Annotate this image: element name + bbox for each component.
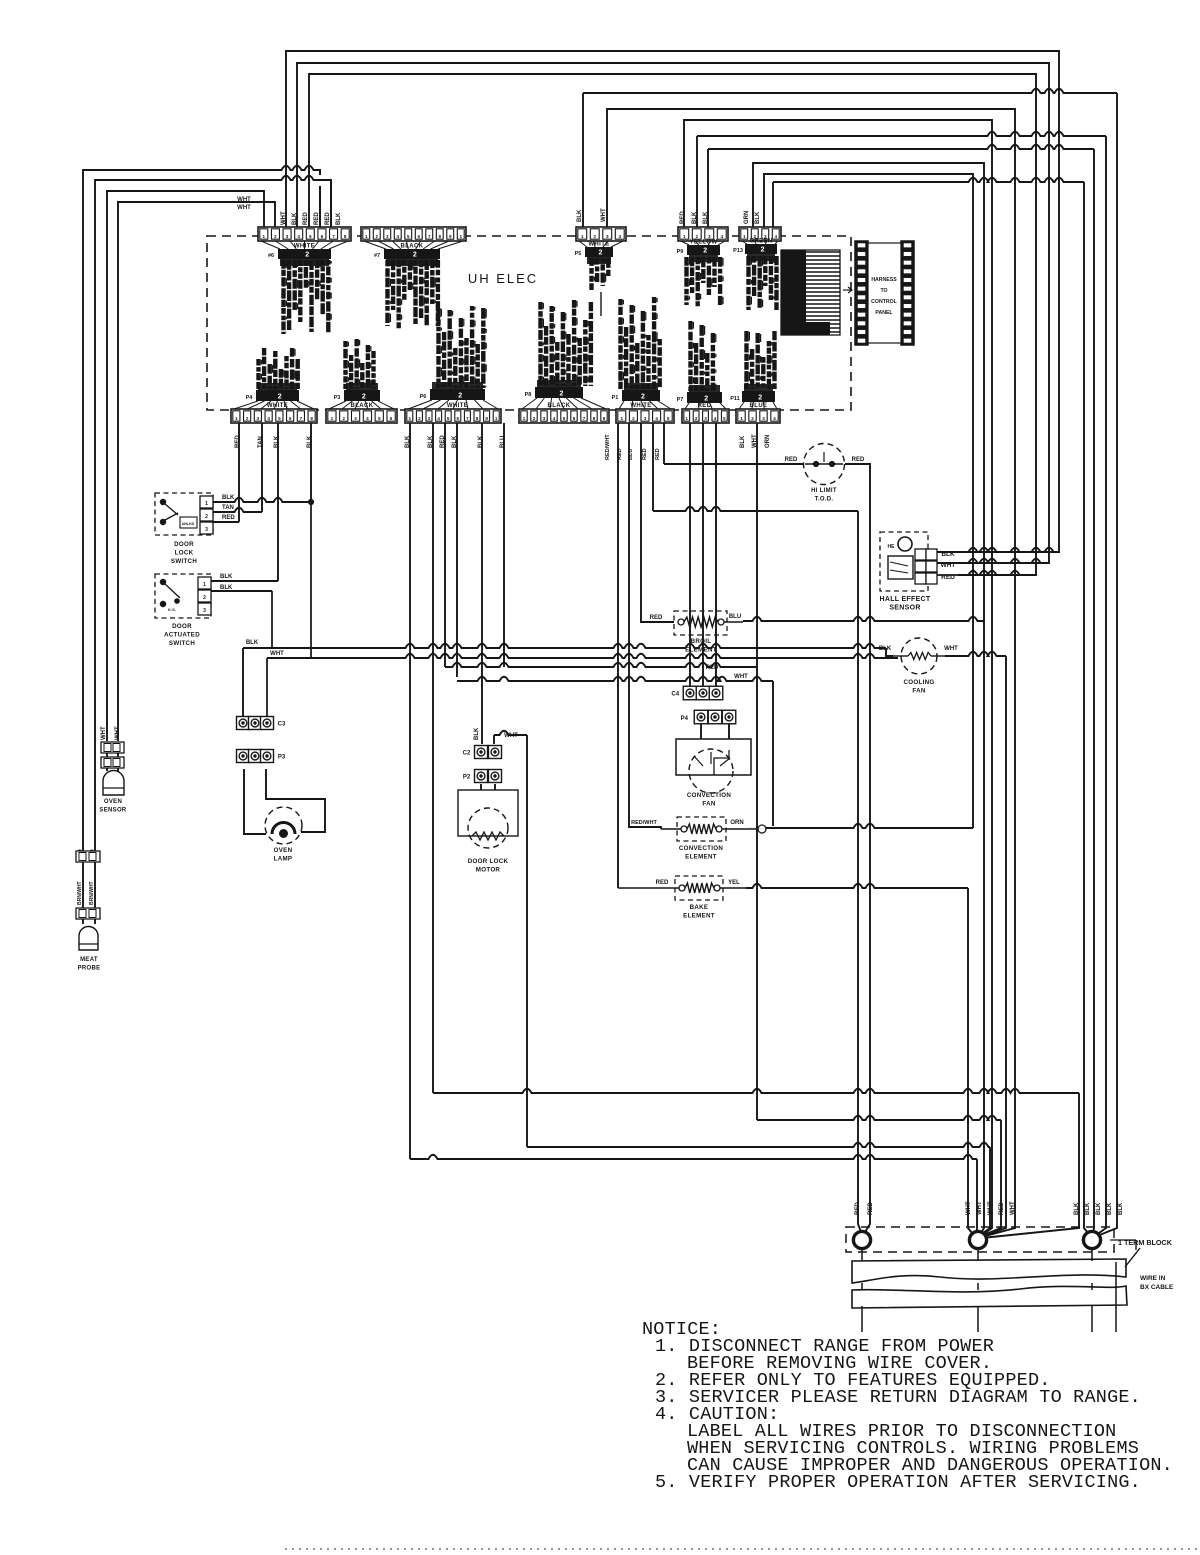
svg-text:2: 2 <box>274 234 277 239</box>
svg-text:DOOR LOCK: DOOR LOCK <box>468 858 509 865</box>
svg-text:4: 4 <box>720 234 723 239</box>
svg-text:4: 4 <box>437 416 440 421</box>
svg-text:1: 1 <box>743 234 746 239</box>
svg-text:5: 5 <box>278 416 281 421</box>
svg-text:RED: RED <box>314 212 320 225</box>
svg-text:P11: P11 <box>730 396 739 402</box>
svg-text:7: 7 <box>332 234 335 239</box>
svg-text:P3: P3 <box>278 755 286 761</box>
svg-text:P5: P5 <box>575 251 582 257</box>
svg-text:5: 5 <box>563 416 566 421</box>
svg-text:WHT: WHT <box>734 674 748 680</box>
svg-text:P4: P4 <box>246 395 254 401</box>
svg-text:WHT: WHT <box>977 1201 983 1215</box>
svg-text:9: 9 <box>603 416 606 421</box>
svg-text:GRN: GRN <box>744 211 750 224</box>
svg-text:MOTOR: MOTOR <box>476 867 501 874</box>
svg-text:RED: RED <box>222 515 235 521</box>
svg-text:CONVECTION: CONVECTION <box>679 845 723 852</box>
svg-text:WHT: WHT <box>237 197 251 203</box>
svg-text:2: 2 <box>375 234 378 239</box>
svg-text:2: 2 <box>246 416 249 421</box>
svg-text:2: 2 <box>761 247 765 254</box>
svg-text:3: 3 <box>428 416 431 421</box>
svg-text:9: 9 <box>485 416 488 421</box>
svg-text:RED/WHT: RED/WHT <box>631 820 657 826</box>
svg-text:SENSOR: SENSOR <box>889 605 920 612</box>
svg-text:C3: C3 <box>278 722 286 728</box>
svg-text:P2: P2 <box>463 775 471 781</box>
svg-text:UH ELEC: UH ELEC <box>468 271 538 286</box>
svg-text:COOLING: COOLING <box>904 679 935 686</box>
svg-text:7: 7 <box>583 416 586 421</box>
svg-text:8: 8 <box>476 416 479 421</box>
svg-text:3: 3 <box>203 608 206 614</box>
svg-text:BLK: BLK <box>692 211 698 224</box>
svg-text:BLK: BLK <box>1096 1202 1102 1215</box>
svg-text:1: 1 <box>685 416 688 421</box>
svg-text:SENSOR: SENSOR <box>99 808 127 814</box>
svg-text:P6: P6 <box>420 394 427 400</box>
svg-text:2: 2 <box>418 416 421 421</box>
svg-text:WHT: WHT <box>504 733 518 739</box>
svg-text:BLK: BLK <box>740 435 746 448</box>
svg-text:2: 2 <box>704 396 708 403</box>
svg-text:RED/WHT: RED/WHT <box>605 434 611 460</box>
svg-text:BLK: BLK <box>1085 1202 1091 1215</box>
svg-text:BLK: BLK <box>307 435 313 448</box>
svg-text:4: 4 <box>714 416 717 421</box>
svg-text:C4: C4 <box>671 692 679 698</box>
svg-text:1: 1 <box>205 501 208 507</box>
svg-text:WHT: WHT <box>101 726 107 740</box>
svg-text:RED: RED <box>650 615 663 621</box>
svg-text:BLK: BLK <box>428 435 434 448</box>
svg-text:3: 3 <box>386 234 389 239</box>
svg-text:BLK: BLK <box>220 585 233 591</box>
svg-text:2: 2 <box>751 416 754 421</box>
svg-text:DOOR: DOOR <box>174 541 194 548</box>
svg-text:RED: RED <box>941 574 955 581</box>
svg-text:4: 4 <box>773 416 776 421</box>
svg-text:BLK: BLK <box>1107 1202 1113 1215</box>
svg-text:RED: RED <box>680 211 686 224</box>
svg-text:ELEMENT: ELEMENT <box>685 647 717 654</box>
svg-text:BLUE: BLUE <box>750 403 768 409</box>
svg-text:5: 5 <box>407 234 410 239</box>
svg-text:5. VERIFY PROPER OPERATION AF: 5. VERIFY PROPER OPERATION AFTER SERVICI… <box>655 1472 1141 1493</box>
svg-text:7: 7 <box>428 234 431 239</box>
svg-text:BLK: BLK <box>274 435 280 448</box>
svg-text:5: 5 <box>667 416 670 421</box>
svg-text:2: 2 <box>632 416 635 421</box>
svg-text:8: 8 <box>310 416 313 421</box>
svg-text:6: 6 <box>573 416 576 421</box>
svg-text:5: 5 <box>309 234 312 239</box>
svg-text:BLK: BLK <box>452 435 458 448</box>
svg-text:4: 4 <box>396 234 399 239</box>
svg-text:LOCK: LOCK <box>175 550 194 557</box>
svg-text:3: 3 <box>762 416 765 421</box>
svg-text:WHT: WHT <box>270 651 284 657</box>
svg-text:1: 1 <box>495 416 498 421</box>
svg-text:2: 2 <box>593 234 596 239</box>
svg-text:CONVECTION: CONVECTION <box>687 792 731 799</box>
svg-text:WHITE: WHITE <box>294 244 315 250</box>
svg-text:GREEN: GREEN <box>749 239 772 245</box>
svg-text:1: 1 <box>621 416 624 421</box>
svg-text:RED: RED <box>642 448 648 460</box>
svg-text:2: 2 <box>278 394 282 401</box>
svg-text:FAN: FAN <box>702 801 716 808</box>
svg-text:WHT: WHT <box>237 205 251 211</box>
svg-text:SWITCH: SWITCH <box>169 640 195 647</box>
svg-text:BLK: BLK <box>1118 1202 1124 1215</box>
svg-text:ELEMENT: ELEMENT <box>685 854 717 861</box>
svg-text:TO: TO <box>880 288 887 294</box>
svg-text:6: 6 <box>417 234 420 239</box>
svg-text:BLK: BLK <box>703 211 709 224</box>
svg-text:9: 9 <box>449 234 452 239</box>
svg-text:P7: P7 <box>677 397 684 403</box>
svg-text:2: 2 <box>695 416 698 421</box>
svg-text:BLU: BLU <box>628 449 634 460</box>
svg-text:OVEN: OVEN <box>104 799 122 805</box>
svg-text:5: 5 <box>378 416 381 421</box>
svg-text:WHT: WHT <box>944 646 958 652</box>
svg-text:3: 3 <box>543 416 546 421</box>
svg-text:1: 1 <box>581 234 584 239</box>
svg-text:1: 1 <box>263 234 266 239</box>
svg-text:RED: RED <box>440 435 446 448</box>
svg-text:ACTUATED: ACTUATED <box>164 632 200 639</box>
svg-text:2: 2 <box>458 393 462 400</box>
svg-text:PANEL: PANEL <box>875 310 893 316</box>
svg-text:RED: RED <box>655 448 661 460</box>
svg-text:BLK: BLK <box>246 640 259 646</box>
svg-text:WHT: WHT <box>601 208 607 222</box>
svg-text:1: 1 <box>365 234 368 239</box>
svg-text:BLK: BLK <box>336 212 342 225</box>
svg-text:#7: #7 <box>374 253 380 259</box>
svg-text:3: 3 <box>644 416 647 421</box>
svg-text:ORN: ORN <box>730 820 743 826</box>
svg-text:HALL EFFECT: HALL EFFECT <box>879 596 930 603</box>
svg-text:RED: RED <box>698 403 712 409</box>
svg-text:WHITE: WHITE <box>588 242 609 248</box>
svg-text:8: 8 <box>593 416 596 421</box>
svg-text:BROIL: BROIL <box>691 638 712 645</box>
svg-text:4: 4 <box>774 234 777 239</box>
svg-text:BLK: BLK <box>478 435 484 448</box>
svg-text:PROBE: PROBE <box>78 966 101 972</box>
svg-text:4: 4 <box>655 416 658 421</box>
svg-text:C2: C2 <box>463 751 471 757</box>
svg-text:RED: RED <box>617 448 623 460</box>
svg-text:WHITE: WHITE <box>447 403 468 409</box>
svg-text:WHITE: WHITE <box>267 403 288 409</box>
svg-text:T.O.D.: T.O.D. <box>815 497 834 503</box>
svg-text:BLU: BLU <box>729 614 741 620</box>
svg-text:WIRE IN: WIRE IN <box>1140 1275 1166 1282</box>
svg-text:2: 2 <box>695 234 698 239</box>
svg-text:3: 3 <box>286 234 289 239</box>
svg-text:YELLOW: YELLOW <box>689 240 717 246</box>
svg-text:2: 2 <box>559 391 563 398</box>
svg-text:P13: P13 <box>733 248 743 254</box>
svg-text:3: 3 <box>606 234 609 239</box>
svg-text:K.S.: K.S. <box>168 607 176 612</box>
svg-text:OVEN: OVEN <box>274 847 293 854</box>
svg-text:BLK: BLK <box>879 646 892 652</box>
svg-text:BLACK: BLACK <box>401 244 424 250</box>
svg-text:HE: HE <box>888 544 896 550</box>
svg-text:BLU: BLU <box>500 436 506 448</box>
svg-text:HI LIMIT: HI LIMIT <box>811 488 837 494</box>
svg-text:3: 3 <box>205 527 208 533</box>
svg-text:2: 2 <box>703 248 707 255</box>
svg-text:5: 5 <box>447 416 450 421</box>
svg-text:BLK: BLK <box>755 211 761 224</box>
svg-text:4: 4 <box>553 416 556 421</box>
svg-text:HARNESS: HARNESS <box>871 277 897 283</box>
svg-text:P9: P9 <box>677 249 684 255</box>
svg-text:YEL: YEL <box>728 880 740 886</box>
svg-text:RED: RED <box>785 457 798 463</box>
svg-text:WHT: WHT <box>941 562 956 569</box>
svg-text:1: 1 <box>523 416 526 421</box>
svg-text:BLK: BLK <box>941 551 955 558</box>
svg-text:WHT: WHT <box>1010 1201 1016 1215</box>
svg-text:P1: P1 <box>612 395 619 401</box>
svg-text:BLK: BLK <box>474 727 480 740</box>
svg-text:WHT: WHT <box>115 726 121 740</box>
svg-text:UNLKD: UNLKD <box>182 522 195 526</box>
svg-text:2: 2 <box>758 395 762 402</box>
svg-text:BLK: BLK <box>220 574 233 580</box>
svg-text:TAN: TAN <box>222 505 234 511</box>
svg-text:RED: RED <box>852 457 865 463</box>
svg-text:P4: P4 <box>681 716 689 722</box>
svg-text:WHT: WHT <box>988 1201 994 1215</box>
svg-text:2: 2 <box>641 394 645 401</box>
svg-text:ORN: ORN <box>765 435 771 448</box>
svg-text:SWITCH: SWITCH <box>171 558 197 565</box>
svg-text:#6: #6 <box>268 253 274 259</box>
svg-text:BAKE: BAKE <box>690 904 709 911</box>
svg-text:3: 3 <box>257 416 260 421</box>
svg-text:P8: P8 <box>525 392 532 398</box>
svg-text:6: 6 <box>321 234 324 239</box>
svg-text:2: 2 <box>205 514 208 520</box>
svg-text:BLK: BLK <box>1074 1202 1080 1215</box>
svg-text:BX CABLE: BX CABLE <box>1140 1284 1174 1291</box>
svg-text:2: 2 <box>598 250 602 257</box>
svg-text:2: 2 <box>203 595 206 601</box>
svg-text:1: 1 <box>409 416 412 421</box>
svg-text:WHT: WHT <box>752 434 758 448</box>
svg-text:7: 7 <box>466 416 469 421</box>
svg-text:BLACK: BLACK <box>548 403 571 409</box>
svg-text:4: 4 <box>267 416 270 421</box>
svg-text:8: 8 <box>438 234 441 239</box>
svg-text:RED: RED <box>999 1202 1005 1215</box>
svg-text:1: 1 <box>235 416 238 421</box>
svg-text:2: 2 <box>342 416 345 421</box>
svg-text:TAN: TAN <box>258 436 264 448</box>
svg-text:2: 2 <box>533 416 536 421</box>
svg-text:BLACK: BLACK <box>351 403 374 409</box>
svg-text:1: 1 <box>683 234 686 239</box>
svg-text:4: 4 <box>618 234 621 239</box>
svg-text:3: 3 <box>708 234 711 239</box>
svg-text:LAMP: LAMP <box>274 856 293 863</box>
svg-text:1: 1 <box>331 416 334 421</box>
svg-text:WHT: WHT <box>966 1201 972 1215</box>
svg-text:3: 3 <box>704 416 707 421</box>
svg-text:WHITE: WHITE <box>630 403 651 409</box>
svg-text:4: 4 <box>297 234 300 239</box>
svg-text:2: 2 <box>362 394 366 401</box>
svg-text:BLK: BLK <box>405 435 411 448</box>
svg-text:8: 8 <box>344 234 347 239</box>
svg-text:ELEMENT: ELEMENT <box>683 913 715 920</box>
svg-text:4: 4 <box>366 416 369 421</box>
svg-text:RED: RED <box>656 880 669 886</box>
svg-text:1: 1 <box>459 234 462 239</box>
svg-text:DOOR: DOOR <box>172 623 192 630</box>
svg-text:BLK: BLK <box>222 495 235 501</box>
svg-text:RED: RED <box>235 435 241 448</box>
svg-text:BLK: BLK <box>577 209 583 222</box>
svg-text:6: 6 <box>457 416 460 421</box>
svg-text:1 TERM BLOCK: 1 TERM BLOCK <box>1118 1238 1173 1247</box>
svg-text:2: 2 <box>413 252 417 259</box>
svg-text:5: 5 <box>723 416 726 421</box>
svg-text:CONTROL: CONTROL <box>871 299 897 305</box>
svg-text:7: 7 <box>300 416 303 421</box>
svg-text:6: 6 <box>289 416 292 421</box>
svg-text:FAN: FAN <box>912 688 926 695</box>
svg-text:MEAT: MEAT <box>80 957 98 963</box>
svg-text:2: 2 <box>305 252 309 259</box>
svg-text:6: 6 <box>390 416 393 421</box>
svg-text:1: 1 <box>740 416 743 421</box>
svg-text:1: 1 <box>203 582 206 588</box>
svg-text:3: 3 <box>354 416 357 421</box>
svg-text:RED: RED <box>868 1202 874 1215</box>
svg-text:P3: P3 <box>334 395 341 401</box>
svg-text:RED: RED <box>706 665 719 671</box>
svg-text:RED: RED <box>325 212 331 225</box>
